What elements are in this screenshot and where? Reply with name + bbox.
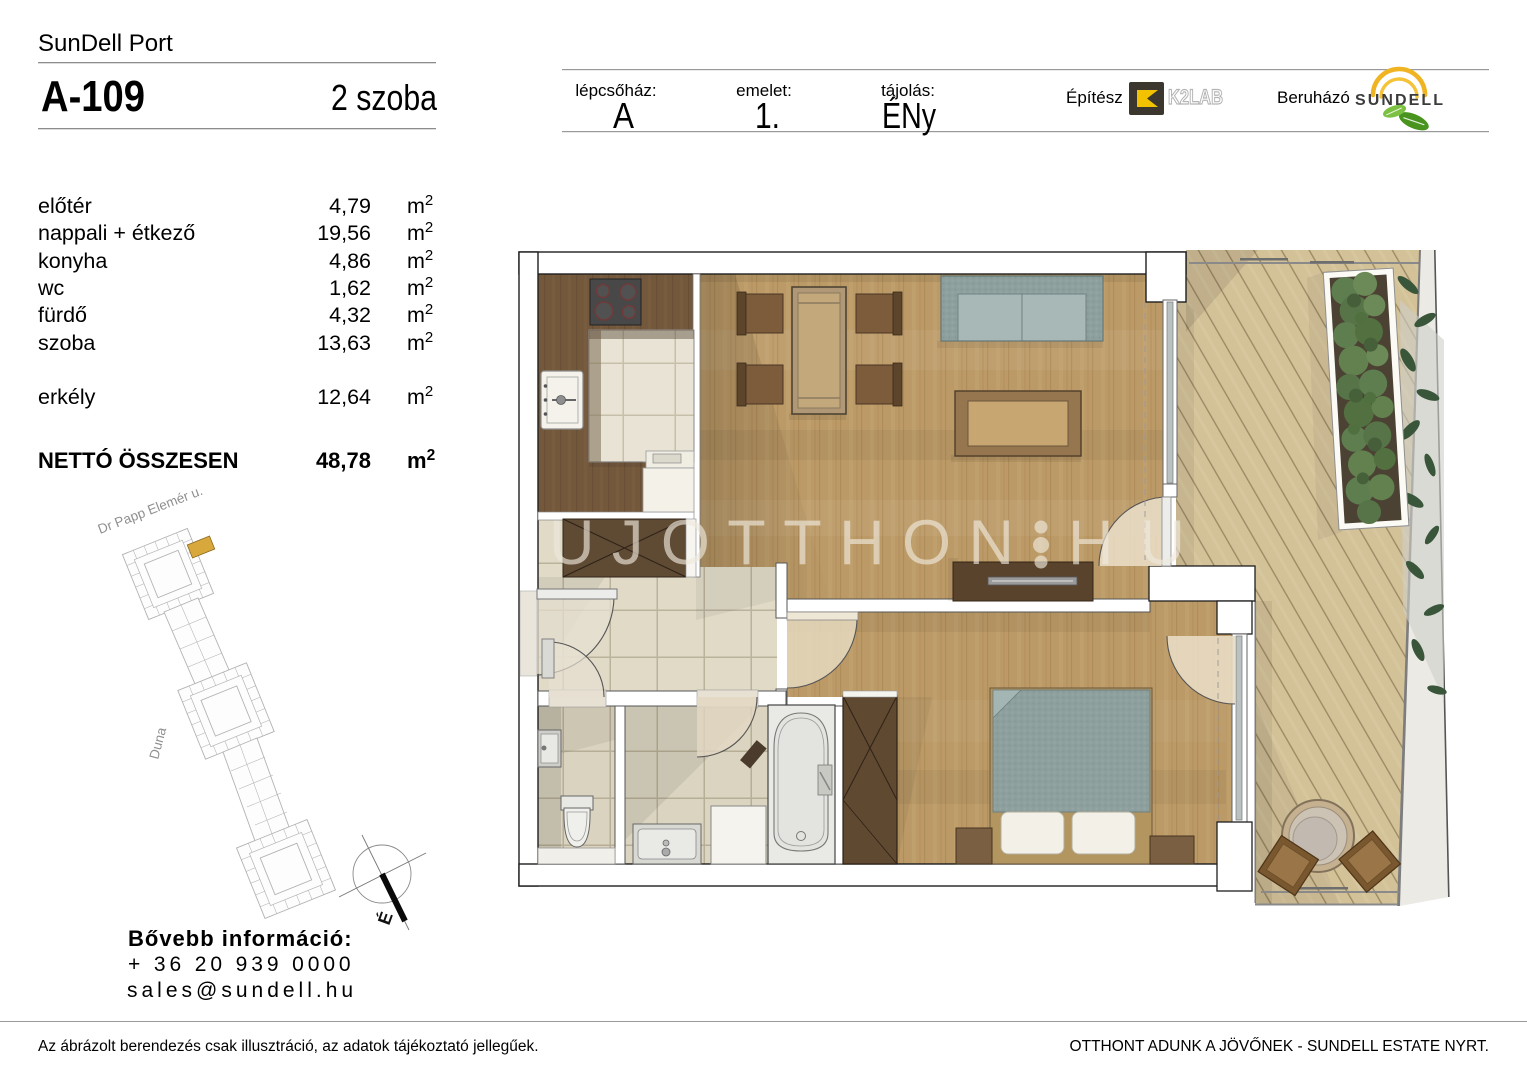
svg-text:m2: m2 <box>407 219 433 245</box>
svg-text:12,64: 12,64 <box>317 385 371 409</box>
svg-text:Az ábrázolt berendezés csak il: Az ábrázolt berendezés csak illusztráció… <box>38 1038 539 1055</box>
svg-text:48,78: 48,78 <box>316 448 371 473</box>
svg-text:Beruházó: Beruházó <box>1277 88 1350 107</box>
svg-text:A: A <box>613 95 634 136</box>
svg-text:+ 36 20 939 0000: + 36 20 939 0000 <box>128 953 354 976</box>
svg-text:Építész: Építész <box>1066 88 1123 107</box>
svg-text:É: É <box>373 909 397 927</box>
svg-text:wc: wc <box>37 276 65 300</box>
svg-text:1.: 1. <box>755 95 780 136</box>
svg-text:Duna: Duna <box>146 725 169 761</box>
svg-text:m2: m2 <box>407 383 433 409</box>
svg-text:szoba: szoba <box>38 331 95 355</box>
svg-text:A-109: A-109 <box>41 72 145 121</box>
svg-text:m2: m2 <box>407 247 433 273</box>
svg-text:4,32: 4,32 <box>329 303 371 327</box>
svg-text:SunDell Port: SunDell Port <box>38 30 173 57</box>
svg-text:erkély: erkély <box>38 385 96 409</box>
svg-text:13,63: 13,63 <box>317 331 371 355</box>
svg-text:Dr Papp Elemér u.: Dr Papp Elemér u. <box>96 483 205 537</box>
svg-text:fürdő: fürdő <box>38 303 87 327</box>
svg-text:1,62: 1,62 <box>329 276 371 300</box>
svg-text:sales@sundell.hu: sales@sundell.hu <box>127 979 357 1002</box>
svg-text:4,86: 4,86 <box>329 249 371 273</box>
svg-text:m2: m2 <box>407 301 433 327</box>
svg-text:19,56: 19,56 <box>317 221 371 245</box>
svg-text:NETTÓ ÖSSZESEN: NETTÓ ÖSSZESEN <box>38 448 238 473</box>
svg-text:m2: m2 <box>407 447 435 473</box>
svg-text:OTTHONT ADUNK A JÖVŐNEK - SUND: OTTHONT ADUNK A JÖVŐNEK - SUNDELL ESTATE… <box>1070 1037 1489 1055</box>
svg-text:konyha: konyha <box>38 249 107 273</box>
svg-text:ÉNy: ÉNy <box>882 95 936 136</box>
svg-text:m2: m2 <box>407 192 433 218</box>
svg-text:m2: m2 <box>407 329 433 355</box>
svg-text:m2: m2 <box>407 274 433 300</box>
svg-text:K2LAB: K2LAB <box>1168 86 1223 109</box>
svg-text:2 szoba: 2 szoba <box>331 77 438 118</box>
svg-text:Bővebb információ:: Bővebb információ: <box>128 926 353 951</box>
svg-text:előtér: előtér <box>38 194 92 218</box>
svg-text:4,79: 4,79 <box>329 194 371 218</box>
svg-text:nappali + étkező: nappali + étkező <box>38 221 195 245</box>
